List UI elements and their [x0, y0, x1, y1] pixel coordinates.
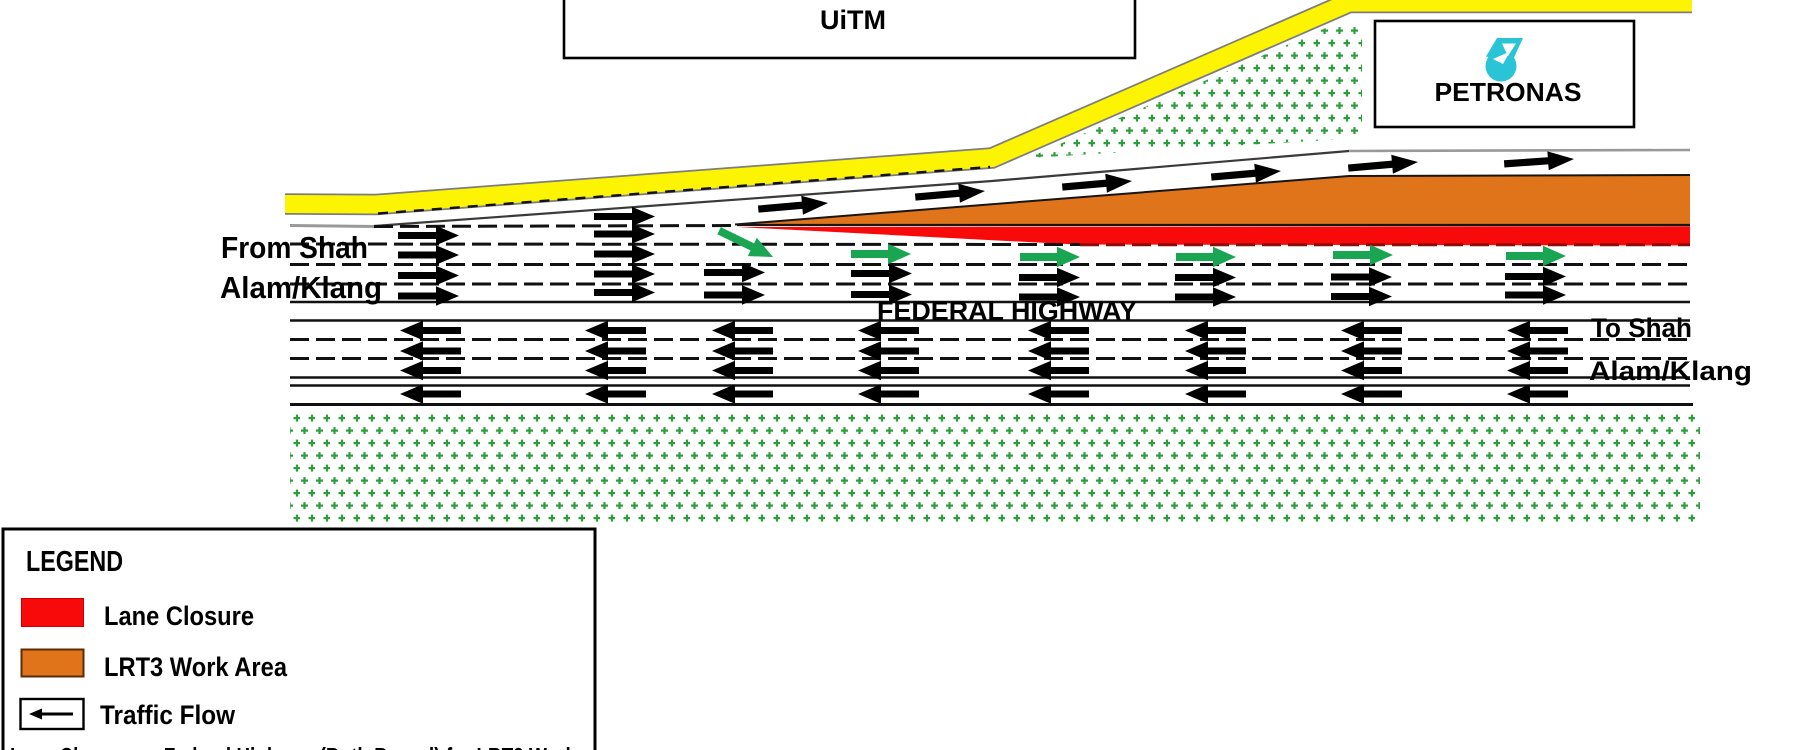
svg-text:LEGEND: LEGEND — [26, 546, 123, 578]
svg-text:From Shah: From Shah — [221, 230, 368, 265]
svg-text:To Shah: To Shah — [1591, 313, 1692, 343]
svg-text:Lane Closure: Lane Closure — [104, 601, 254, 631]
svg-text:Lane Closure on Federal Highwa: Lane Closure on Federal Highway (Both Bo… — [10, 742, 576, 750]
svg-text:PETRONAS: PETRONAS — [1435, 77, 1582, 107]
svg-text:LRT3 Work Area: LRT3 Work Area — [104, 652, 288, 682]
svg-text:UiTM: UiTM — [820, 5, 886, 35]
svg-text:FEDERAL HIGHWAY: FEDERAL HIGHWAY — [877, 296, 1137, 326]
svg-text:Alam/Klang: Alam/Klang — [220, 270, 382, 305]
svg-text:Alam/Klang: Alam/Klang — [1589, 356, 1752, 386]
svg-text:Traffic Flow: Traffic Flow — [100, 700, 236, 730]
